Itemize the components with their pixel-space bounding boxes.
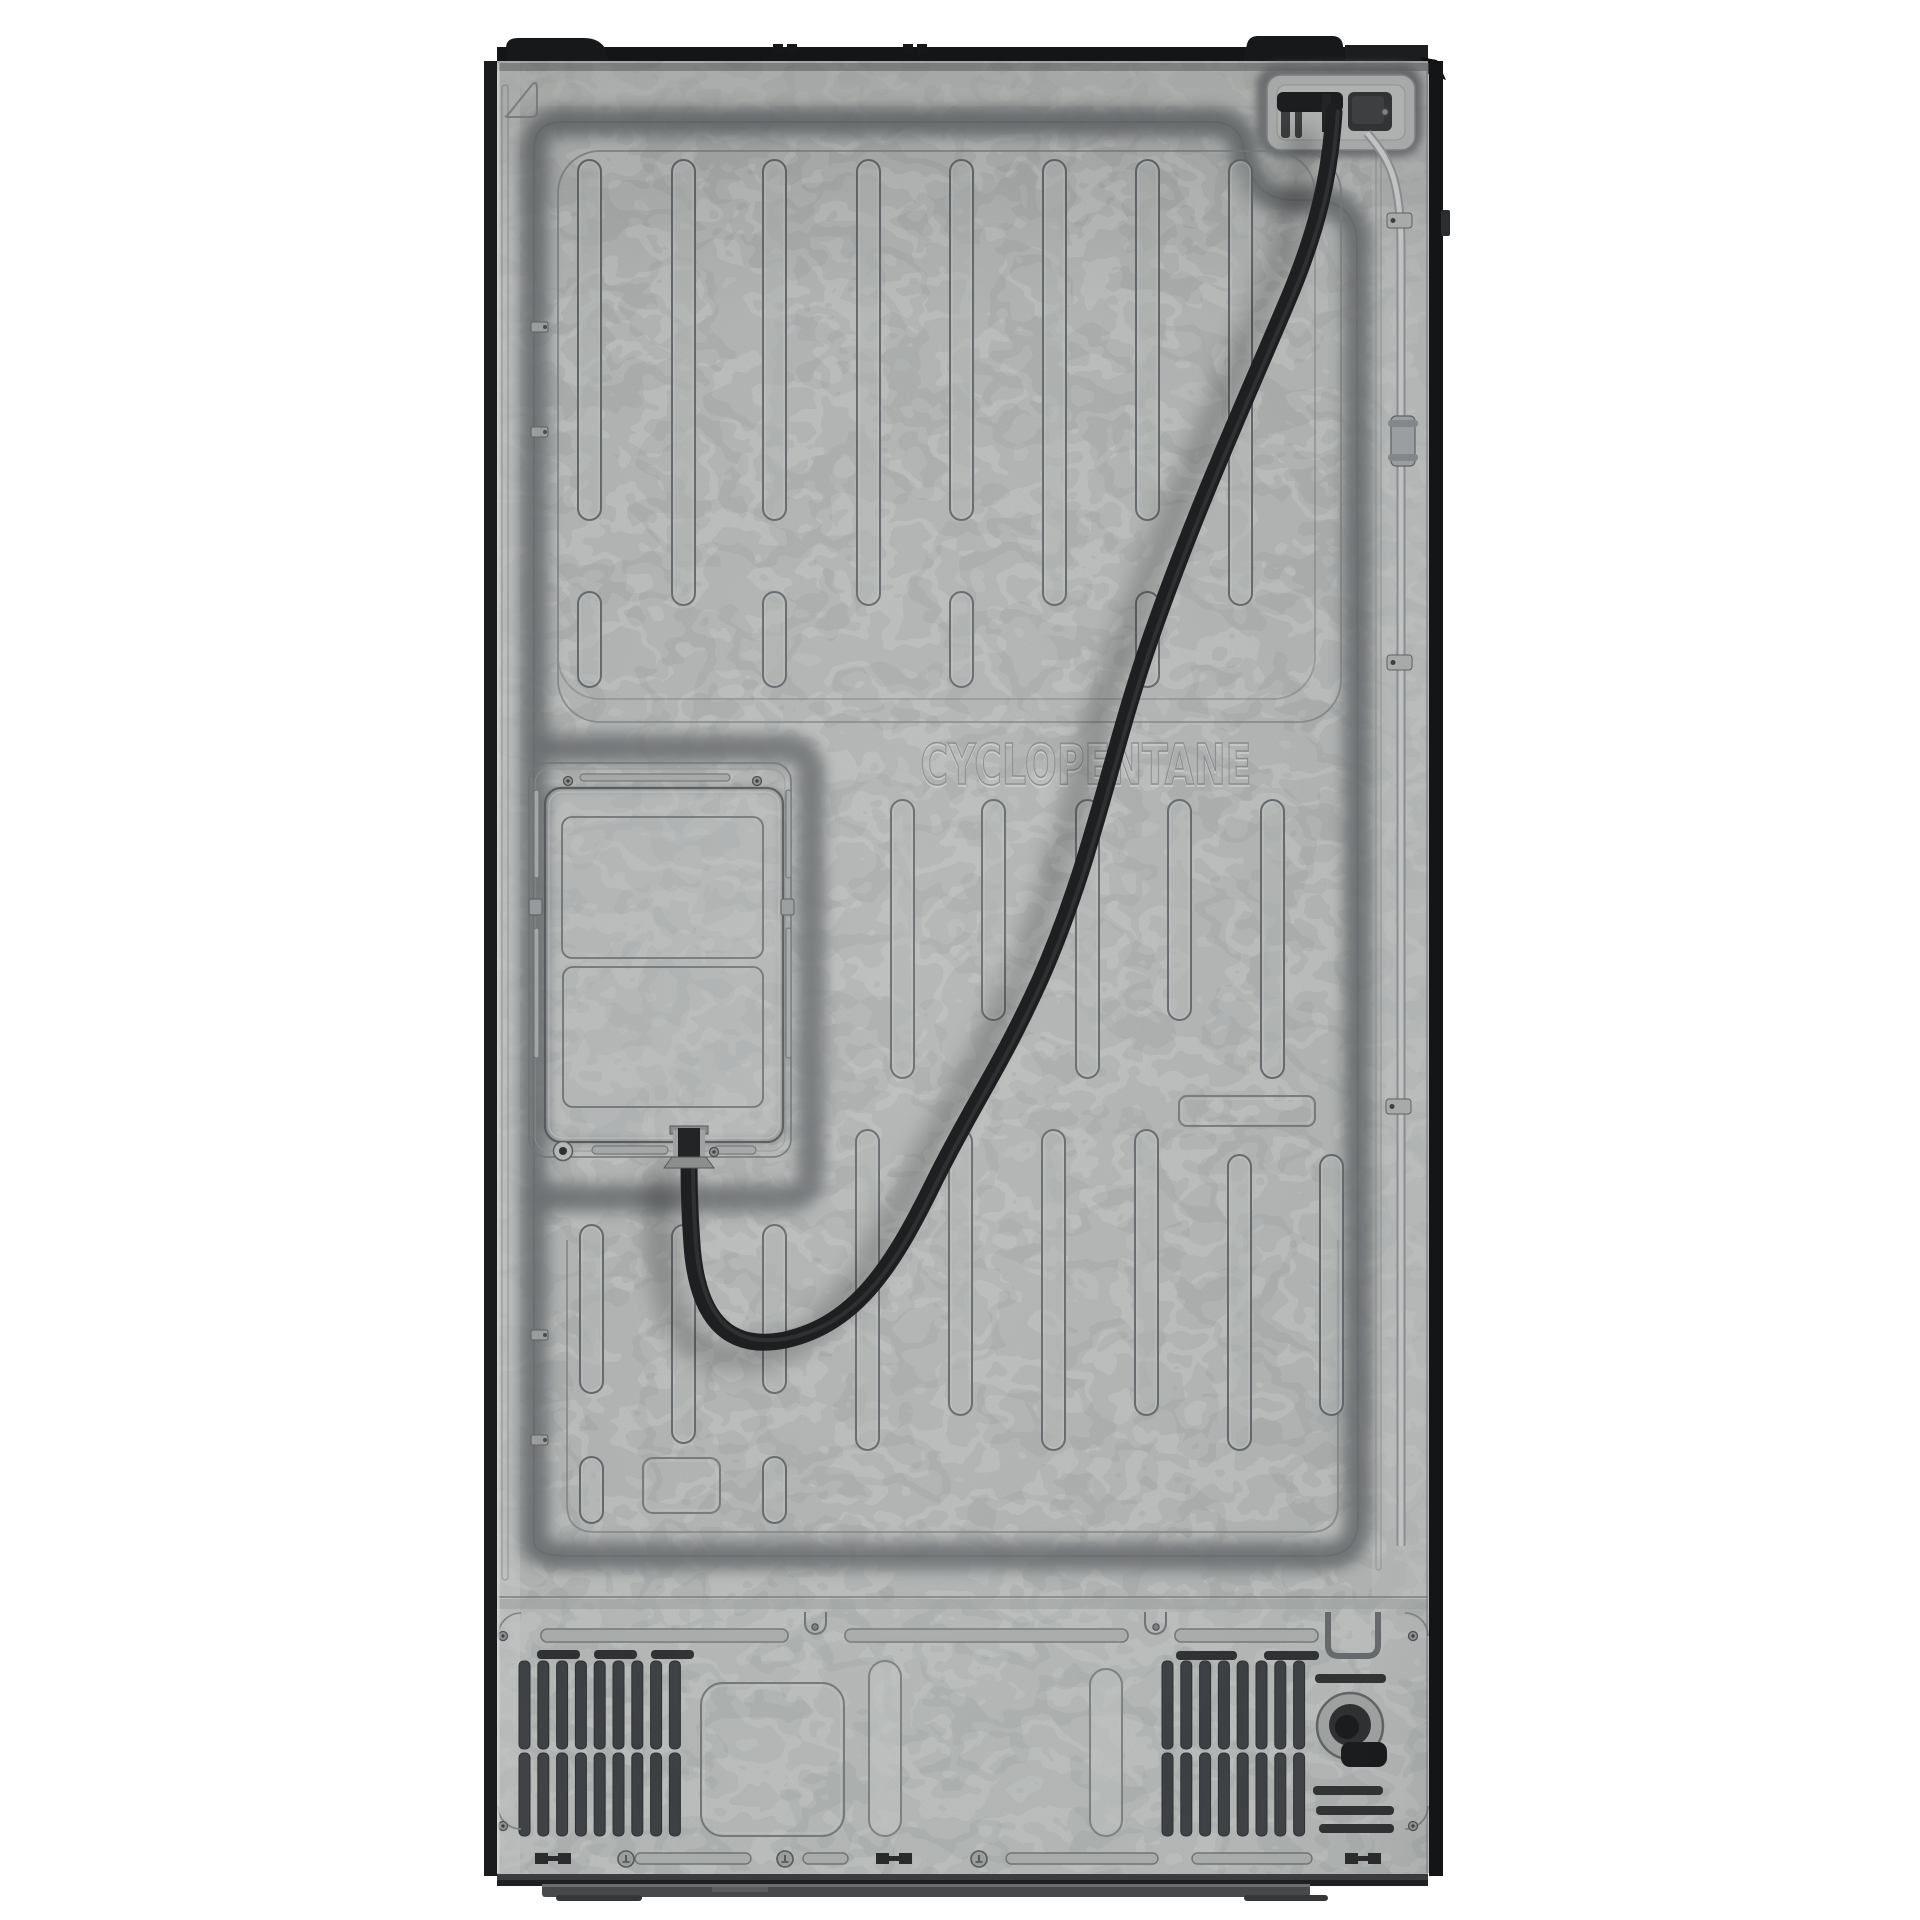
water-clip-pin — [1391, 218, 1396, 223]
small-screw — [1153, 1624, 1159, 1630]
photo-canvas: CYCLOPENTANE CYCLOPENTANE — [0, 0, 1920, 1920]
cap-tab — [773, 44, 783, 54]
top-cap-right-block — [1243, 36, 1345, 62]
socket-face — [1352, 96, 1384, 124]
right-edge-band — [1429, 61, 1443, 1876]
channel-clip-pin — [543, 325, 547, 329]
screw-center — [1411, 1634, 1414, 1637]
lighting — [497, 61, 1428, 1876]
cap-tab — [787, 44, 797, 54]
water-clip-pin — [1390, 1104, 1395, 1109]
channel-clip-pin — [543, 430, 547, 434]
screw-center — [1411, 1824, 1414, 1827]
back-metal: CYCLOPENTANE CYCLOPENTANE — [497, 61, 1428, 1886]
base-top-light — [542, 1884, 1310, 1887]
right-edge-clip-tab — [1441, 210, 1450, 236]
channel-clip-pin — [543, 1333, 547, 1337]
screw-center — [566, 779, 569, 782]
grommet-flange — [664, 1157, 714, 1168]
top-cap-left-bump — [506, 38, 610, 62]
cap-tab — [903, 44, 913, 54]
screw-center — [501, 1634, 504, 1637]
washer-screw-center — [559, 1147, 567, 1155]
channel-clip-pin — [543, 1438, 547, 1442]
foot-right — [1244, 1895, 1328, 1901]
top-cap-right-step — [1345, 45, 1428, 63]
foot-left — [556, 1895, 642, 1901]
small-screw — [812, 1624, 818, 1630]
left-edge-band — [484, 61, 497, 1876]
cap-tab — [917, 44, 927, 54]
water-clip-pin — [1391, 660, 1396, 665]
screw-center — [501, 1824, 504, 1827]
right-edge-halftone — [1426, 63, 1429, 1873]
refrigerator-back-photo: CYCLOPENTANE CYCLOPENTANE — [0, 0, 1920, 1920]
screw-center — [712, 1150, 715, 1153]
small-screw — [1382, 109, 1388, 115]
left-edge-highlight — [497, 63, 500, 1873]
water-union-collar — [1388, 420, 1418, 427]
vignette — [497, 61, 1428, 1876]
water-union-collar — [1388, 454, 1418, 461]
screw-center — [755, 779, 758, 782]
